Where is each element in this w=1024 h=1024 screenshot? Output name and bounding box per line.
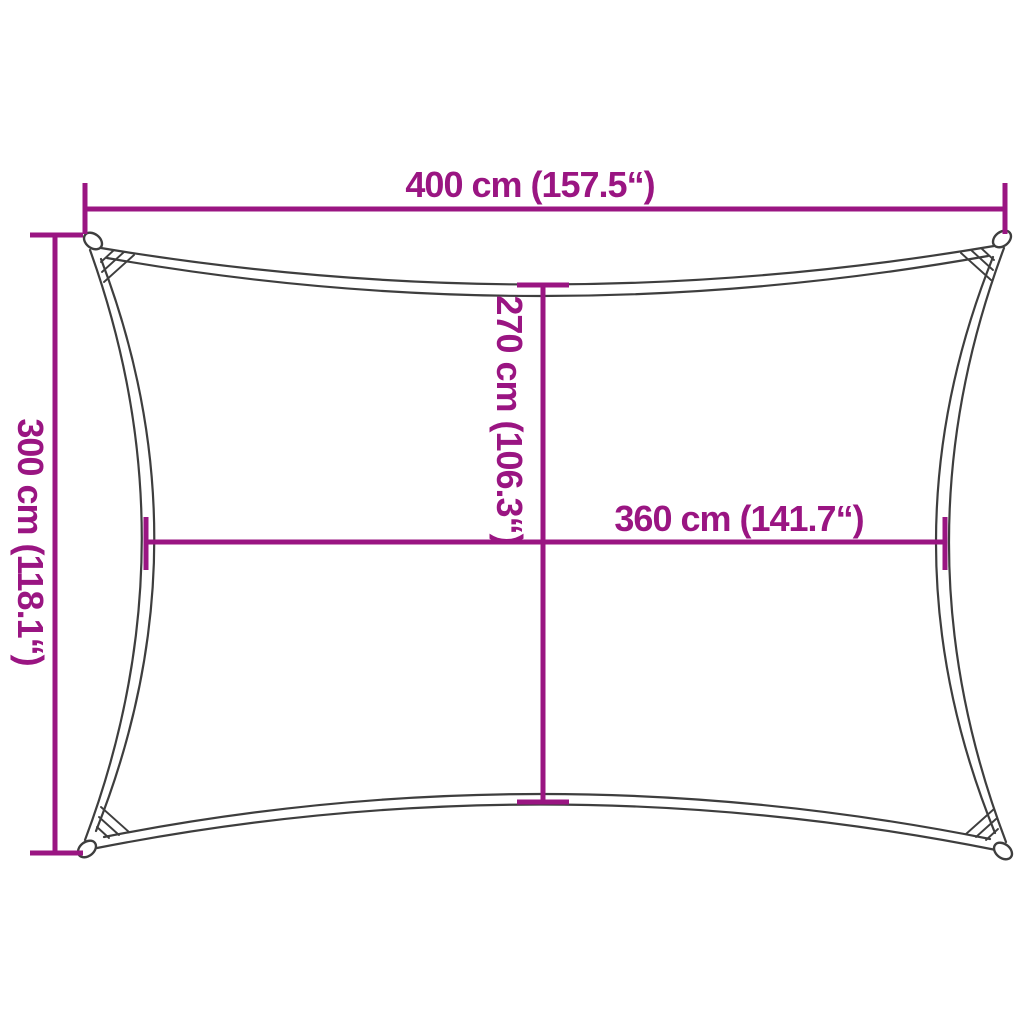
sail-edge-left-outer	[85, 250, 142, 840]
dimension-outer-width: 400 cm (157.5“)	[85, 164, 1005, 234]
inner-width-label: 360 cm (141.7“)	[614, 498, 863, 539]
dimension-outer-height: 300 cm (118.1“)	[10, 235, 83, 853]
sail-edge-bottom-outer	[97, 804, 996, 850]
sail-edge-top-inner	[107, 256, 988, 296]
shade-sail-dimension-diagram: 400 cm (157.5“) 300 cm (118.1“) 270 cm (…	[0, 0, 1024, 1024]
outer-height-label: 300 cm (118.1“)	[10, 418, 51, 665]
corner-eyelet-bottom-left	[75, 837, 99, 860]
outer-width-label: 400 cm (157.5“)	[405, 164, 654, 205]
diagram-canvas: 400 cm (157.5“) 300 cm (118.1“) 270 cm (…	[0, 0, 1024, 1024]
corner-eyelet-bottom-right	[991, 839, 1015, 862]
inner-height-label: 270 cm (106.3“)	[489, 295, 530, 544]
corner-stitching-top-left	[101, 250, 134, 282]
sail-edge-top-outer	[101, 246, 994, 285]
sail-edge-right-outer	[949, 248, 1006, 842]
corner-stitching-top-right	[961, 248, 994, 280]
